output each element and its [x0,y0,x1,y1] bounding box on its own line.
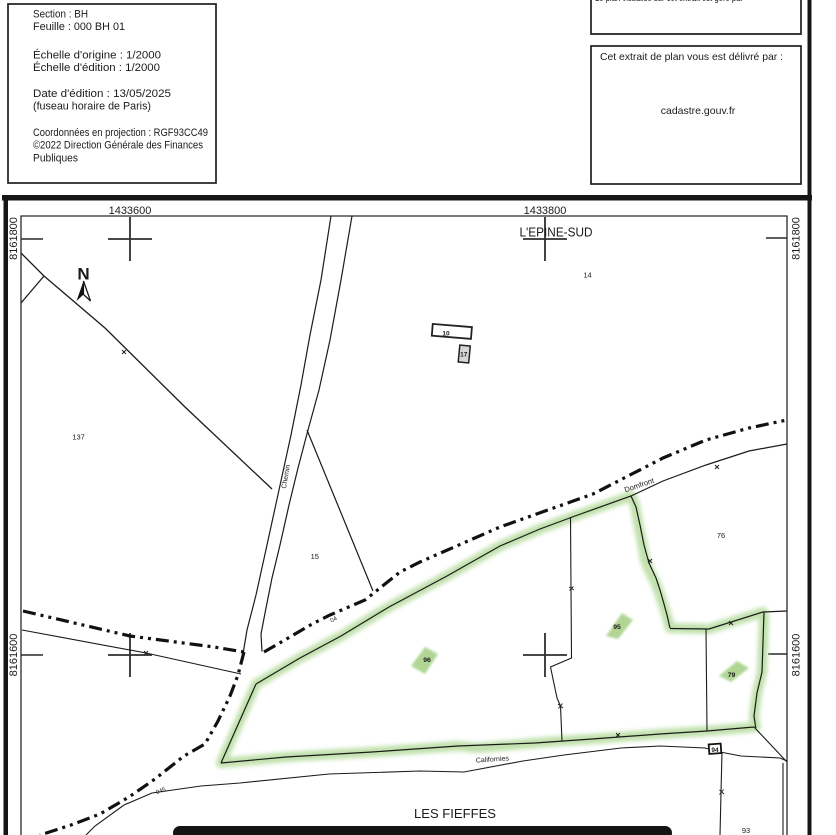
svg-text:(fuseau horaire de Paris): (fuseau horaire de Paris) [33,101,151,113]
svg-text:96: 96 [423,657,431,664]
svg-text:76: 76 [717,531,725,540]
svg-text:94: 94 [711,747,719,754]
svg-text:Le plan visualisé sur cet extr: Le plan visualisé sur cet extrait est gé… [595,0,744,4]
svg-text:8161800: 8161800 [791,217,803,260]
svg-text:Coordonnées en projection : RG: Coordonnées en projection : RGF93CC49 [33,127,208,139]
svg-text:Publiques: Publiques [33,153,78,165]
svg-text:17: 17 [460,352,468,359]
svg-text:137: 137 [72,433,85,442]
svg-text:Cet extrait de plan vous est d: Cet extrait de plan vous est délivré par… [600,51,783,63]
svg-text:79: 79 [728,672,736,679]
svg-text:cadastre.gouv.fr: cadastre.gouv.fr [661,105,736,117]
svg-text:8161600: 8161600 [791,634,803,677]
svg-text:Section : BH: Section : BH [33,9,88,21]
svg-text:93: 93 [742,826,750,835]
svg-text:LES FIEFFES: LES FIEFFES [414,806,496,821]
svg-text:Échelle d'édition : 1/2000: Échelle d'édition : 1/2000 [33,61,160,74]
svg-text:Feuille : 000 BH 01: Feuille : 000 BH 01 [33,21,125,33]
svg-text:©2022 Direction Générale des F: ©2022 Direction Générale des Finances [33,140,203,152]
svg-text:14: 14 [583,271,591,280]
svg-text:95: 95 [613,624,621,631]
svg-text:1433600: 1433600 [109,205,152,217]
svg-text:15: 15 [311,552,319,561]
svg-text:1433800: 1433800 [524,205,567,217]
svg-text:N: N [77,265,89,284]
svg-text:10: 10 [442,331,450,338]
svg-text:Date d'édition : 13/05/2025: Date d'édition : 13/05/2025 [33,88,171,100]
svg-text:Échelle d'origine : 1/2000: Échelle d'origine : 1/2000 [33,49,161,62]
svg-text:L'EPINE-SUD: L'EPINE-SUD [520,226,593,240]
svg-text:8161800: 8161800 [8,217,20,260]
svg-text:8161600: 8161600 [8,634,20,677]
